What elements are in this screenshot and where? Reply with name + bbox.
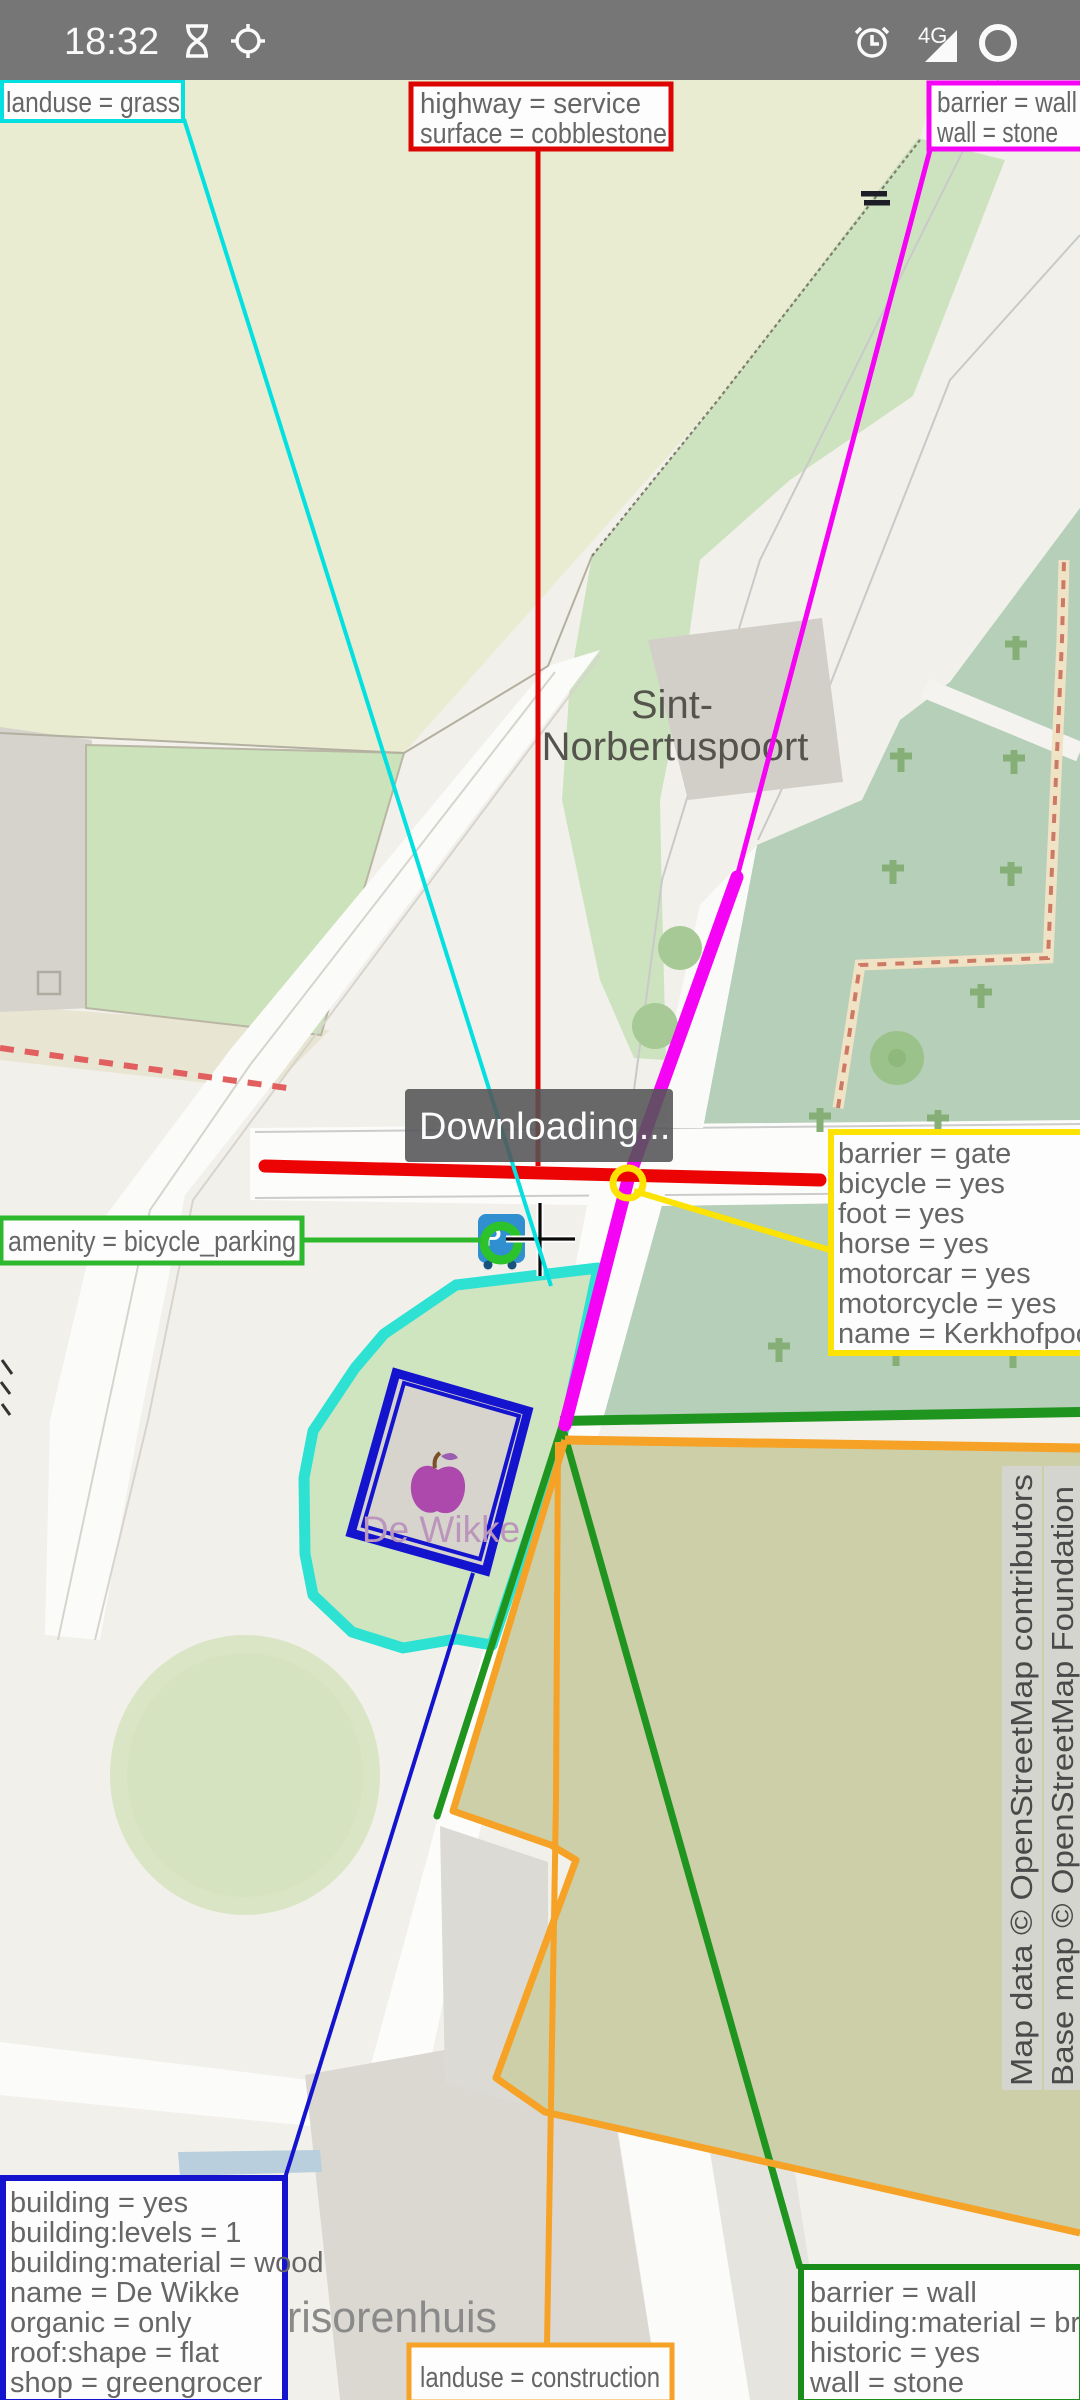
svg-text:horse = yes: horse = yes (838, 1228, 989, 1260)
svg-text:building:material = brick: building:material = brick (810, 2307, 1080, 2339)
svg-text:roof:shape = flat: roof:shape = flat (10, 2337, 219, 2369)
svg-text:Map data © OpenStreetMap contr: Map data © OpenStreetMap contributors (1004, 1474, 1039, 2086)
svg-text:Downloading...: Downloading... (419, 1106, 670, 1148)
svg-text:surface = cobblestone: surface = cobblestone (420, 118, 667, 150)
svg-text:bicycle = yes: bicycle = yes (838, 1168, 1005, 1200)
svg-text:foot = yes: foot = yes (838, 1198, 965, 1230)
svg-text:wall = stone: wall = stone (809, 2367, 964, 2399)
svg-text:barrier = wall: barrier = wall (937, 87, 1077, 119)
svg-text:amenity = bicycle_parking: amenity = bicycle_parking (8, 1226, 296, 1258)
svg-text:De Wikke: De Wikke (362, 1509, 520, 1550)
svg-text:highway = service: highway = service (420, 88, 641, 120)
svg-text:18:32: 18:32 (64, 21, 159, 63)
svg-text:barrier = wall: barrier = wall (810, 2277, 977, 2309)
svg-text:organic = only: organic = only (10, 2307, 192, 2339)
svg-text:landuse = grass: landuse = grass (6, 87, 180, 119)
svg-text:building:levels = 1: building:levels = 1 (10, 2217, 241, 2249)
svg-text:Base map © OpenStreetMap Found: Base map © OpenStreetMap Foundation (1045, 1486, 1080, 2086)
svg-text:barrier = gate: barrier = gate (838, 1138, 1011, 1170)
svg-text:building:material = wood: building:material = wood (10, 2247, 324, 2279)
svg-text:motorcycle = yes: motorcycle = yes (838, 1288, 1056, 1320)
svg-text:name = Kerkhofpoort: name = Kerkhofpoort (838, 1318, 1080, 1350)
svg-text:4G: 4G (918, 23, 947, 48)
svg-text:historic = yes: historic = yes (810, 2337, 980, 2369)
svg-text:shop = greengrocer: shop = greengrocer (10, 2367, 263, 2399)
svg-text:wall = stone: wall = stone (936, 117, 1058, 149)
svg-text:landuse = construction: landuse = construction (420, 2362, 660, 2394)
svg-text:name = De Wikke: name = De Wikke (10, 2277, 240, 2309)
svg-text:building = yes: building = yes (10, 2187, 188, 2219)
svg-text:Sint-: Sint- (631, 683, 713, 727)
svg-text:motorcar = yes: motorcar = yes (838, 1258, 1031, 1290)
svg-text:risorenhuis: risorenhuis (287, 2293, 497, 2342)
